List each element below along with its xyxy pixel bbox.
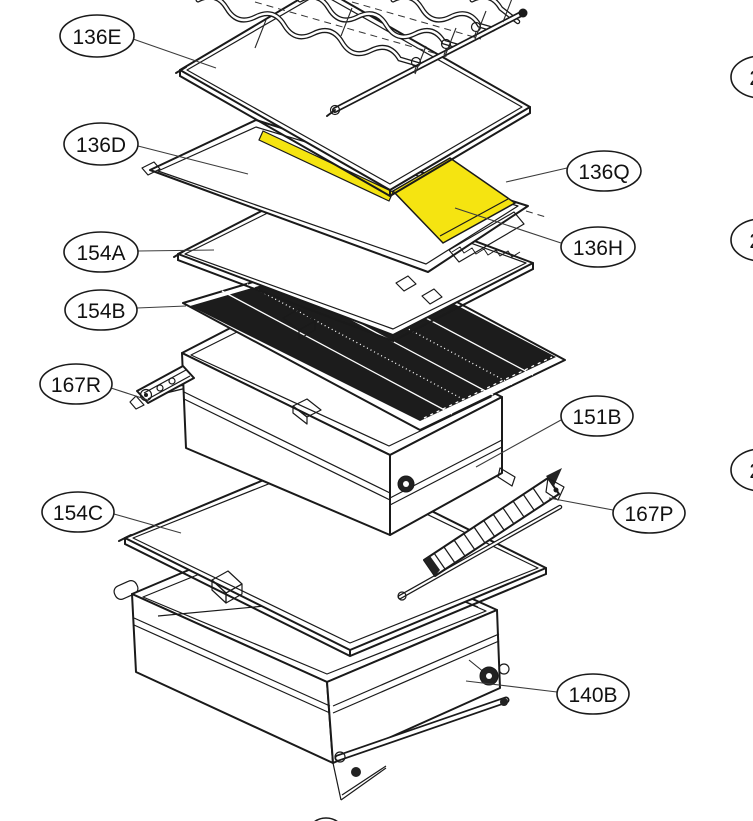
callout-151b-label: 151B bbox=[572, 406, 621, 429]
callout-154a-label: 154A bbox=[76, 242, 125, 265]
callout-167p[interactable]: 167P bbox=[549, 493, 685, 533]
exploded-parts-page: 136E 136D 154A 154B 167R 154C 136Q 136H bbox=[0, 0, 753, 821]
callout-24-top-label: 24 bbox=[749, 67, 753, 90]
callout-154b-label: 154B bbox=[76, 300, 125, 323]
callout-136q[interactable]: 136Q bbox=[506, 151, 641, 191]
callout-140b-label: 140B bbox=[568, 684, 617, 707]
callout-167r-label: 167R bbox=[51, 374, 101, 397]
callout-136e-label: 136E bbox=[72, 26, 121, 49]
callout-167r[interactable]: 167R bbox=[40, 364, 148, 404]
callout-136e[interactable]: 136E bbox=[60, 15, 216, 68]
drawer-roller-stub bbox=[499, 664, 509, 674]
callout-136d-label: 136D bbox=[76, 134, 126, 157]
exploded-parts-diagram: 136E 136D 154A 154B 167R 154C 136Q 136H bbox=[0, 0, 753, 821]
callout-136q-label: 136Q bbox=[578, 161, 629, 184]
drawer-corner-roller bbox=[351, 767, 361, 777]
callout-24-bottom[interactable]: 24 bbox=[731, 449, 753, 491]
callout-154b[interactable]: 154B bbox=[65, 290, 186, 330]
callout-154c-label: 154C bbox=[53, 502, 103, 525]
callout-136h-label: 136H bbox=[573, 237, 623, 260]
callout-24-mid-label: 24 bbox=[749, 230, 753, 253]
callout-167p-label: 167P bbox=[624, 503, 673, 526]
callout-154c[interactable]: 154C bbox=[42, 492, 181, 533]
callout-24-mid[interactable]: 24 bbox=[731, 219, 753, 261]
callout-24-top[interactable]: 24 bbox=[731, 56, 753, 98]
callout-24-bottom-label: 24 bbox=[749, 460, 753, 483]
